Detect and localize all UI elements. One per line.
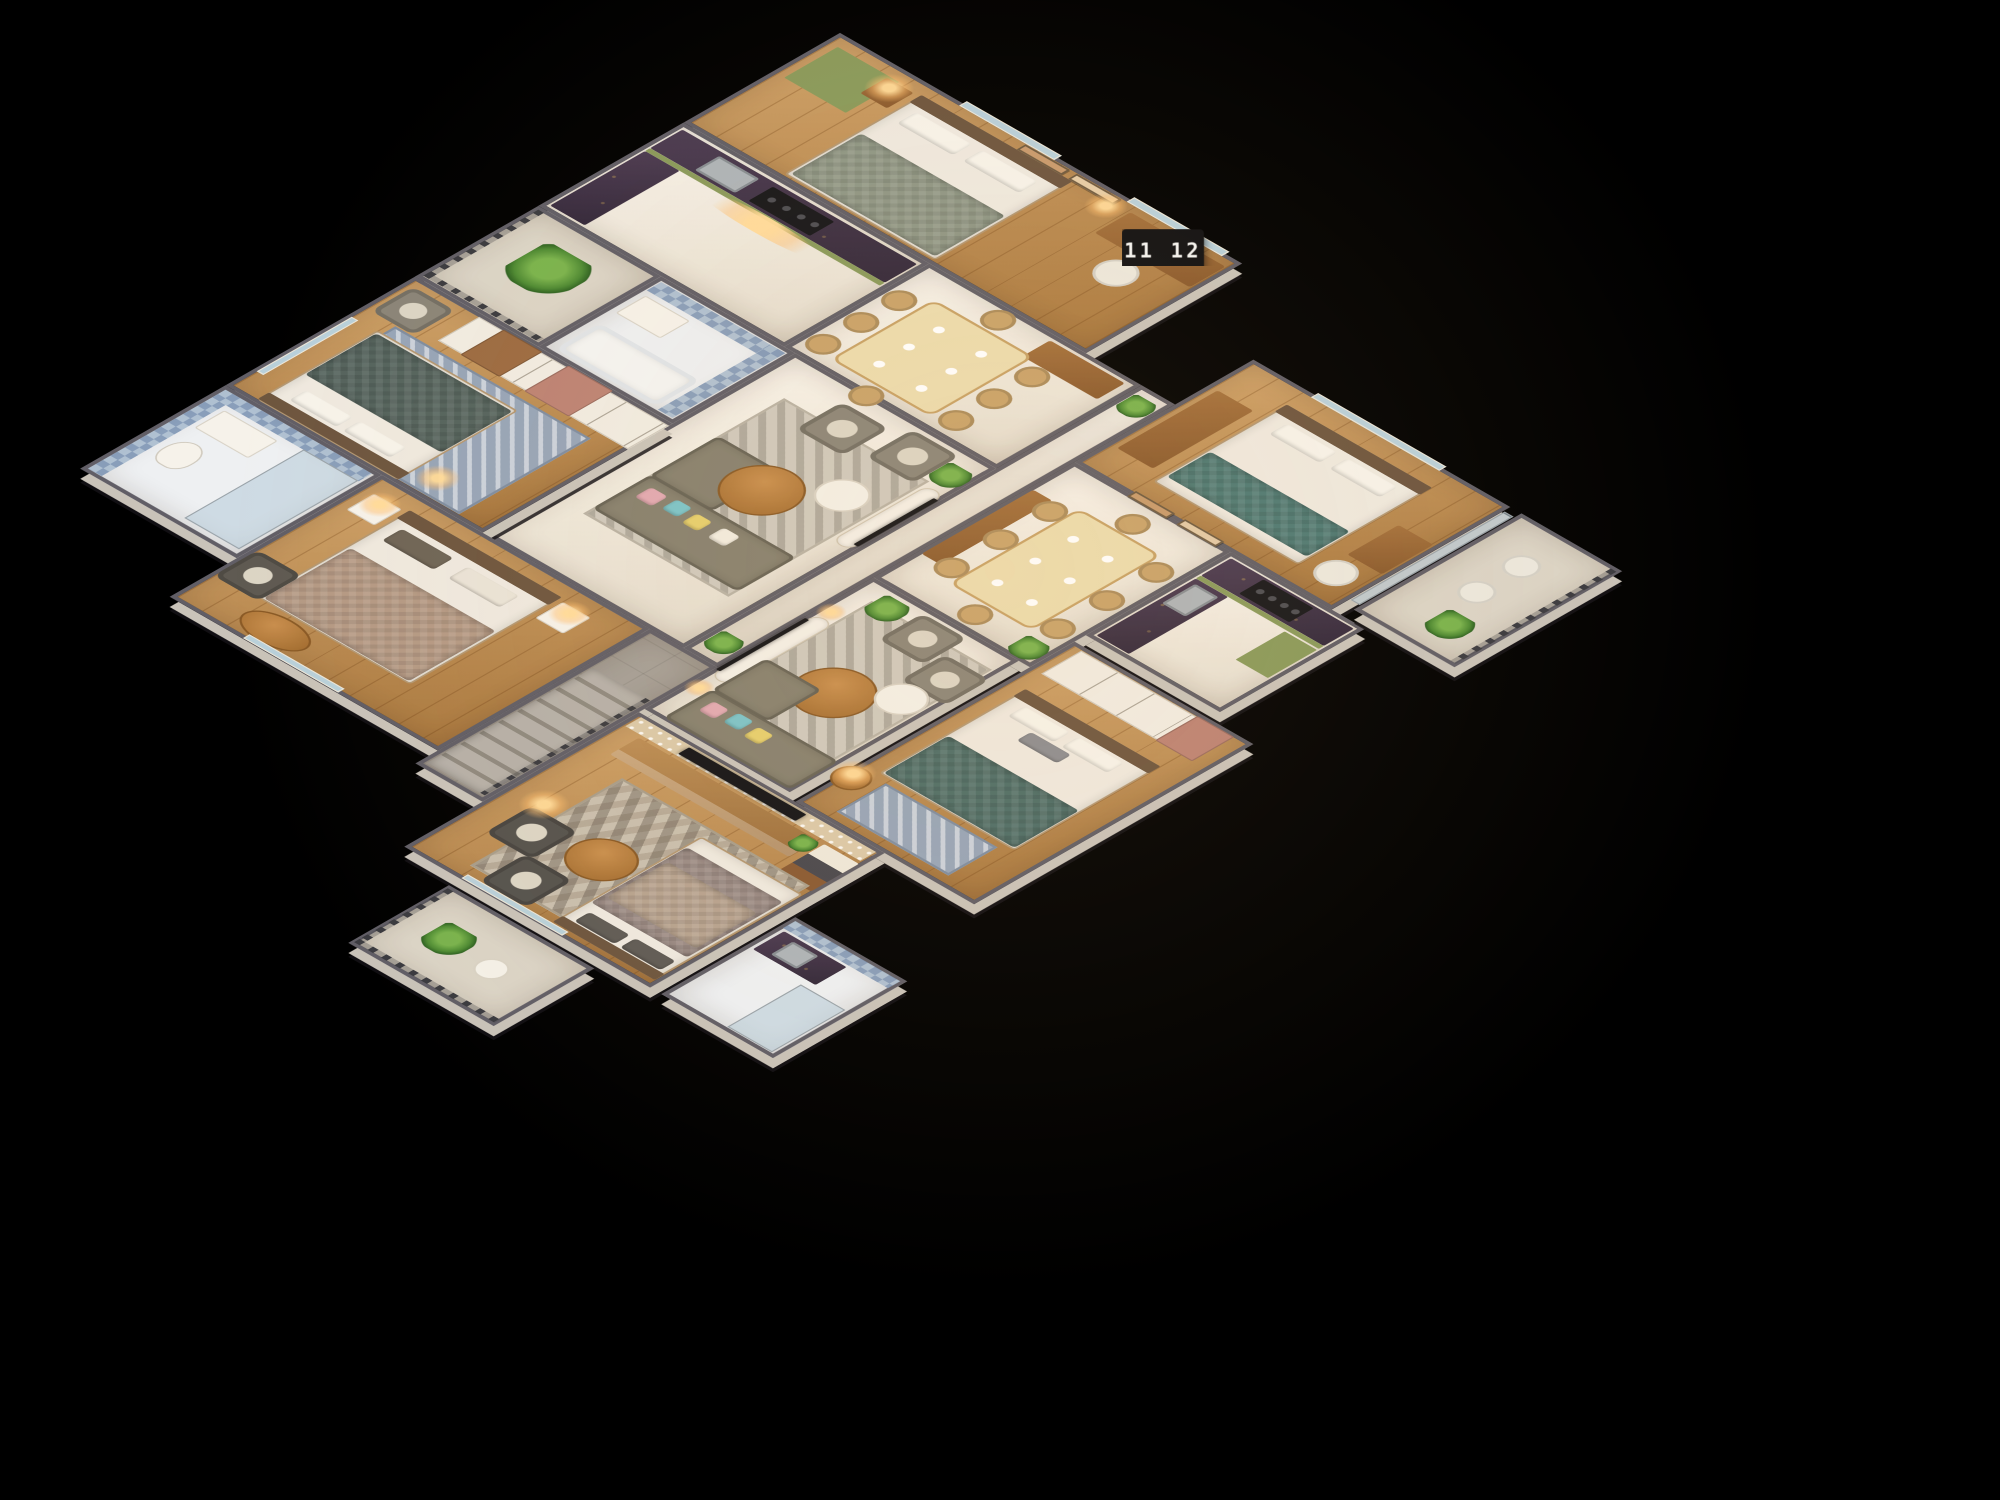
isometric-building: 11 12 [0,20,1790,1206]
floor-plan-render: 11 12 [0,0,2000,1500]
tile-wall [783,921,900,988]
